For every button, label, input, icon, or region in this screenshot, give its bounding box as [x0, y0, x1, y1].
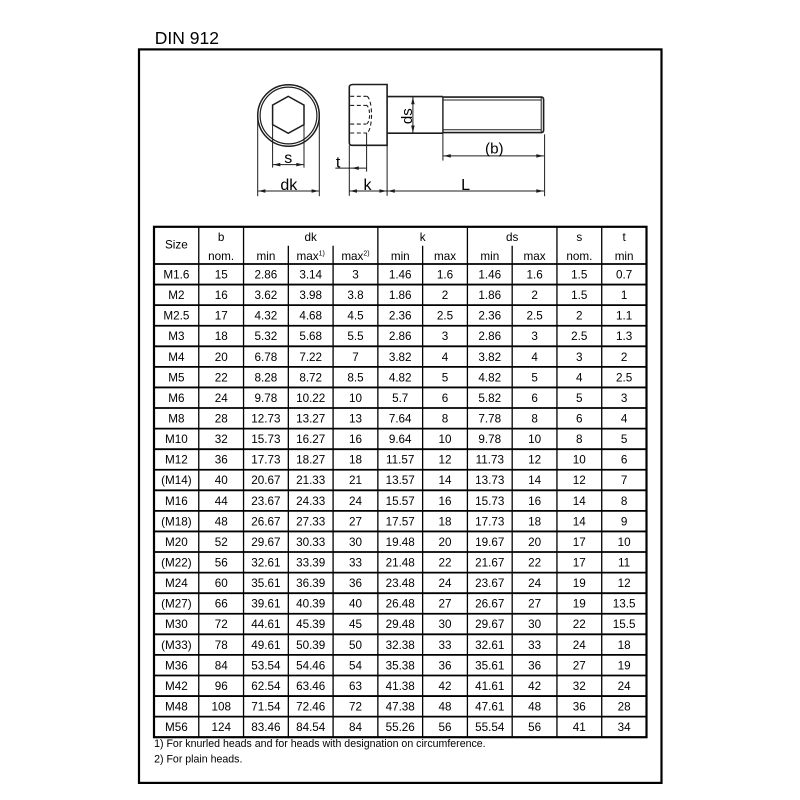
- svg-text:ds: ds: [399, 108, 416, 124]
- svg-text:M205229.6730.333019.482019.672: M205229.6730.333019.482019.67201710: [165, 536, 631, 549]
- svg-text:M2.5174.324.684.52.362.52.362.: M2.5174.324.684.52.362.52.362.521.1: [163, 310, 632, 323]
- svg-text:M307244.6145.394529.483029.673: M307244.6145.394529.483029.67302215.5: [165, 618, 636, 631]
- svg-text:M6249.7810.22105.765.82653: M6249.7810.22105.765.82653: [168, 392, 627, 405]
- svg-text:s: s: [284, 150, 292, 167]
- svg-text:(M33)7849.6150.395032.383332.6: (M33)7849.6150.395032.383332.61332418: [161, 639, 630, 652]
- svg-text:M246035.6136.393623.482423.672: M246035.6136.393623.482423.67241912: [165, 577, 631, 590]
- svg-text:M3185.325.685.52.8632.8632.51.: M3185.325.685.52.8632.8632.51.3: [168, 330, 632, 343]
- svg-text:L: L: [461, 177, 470, 194]
- svg-text:t: t: [336, 155, 341, 172]
- svg-text:max: max: [524, 250, 546, 263]
- svg-text:M1.6152.863.1431.461.61.461.61: M1.6152.863.1431.461.61.461.61.50.7: [163, 268, 632, 281]
- svg-text:M103215.7316.27169.64109.78108: M103215.7316.27169.64109.781085: [165, 433, 628, 446]
- svg-text:(b): (b): [485, 141, 504, 158]
- svg-text:min: min: [391, 250, 410, 263]
- svg-text:min: min: [615, 250, 634, 263]
- svg-text:max2): max2): [341, 250, 369, 263]
- svg-text:M368453.5454.465435.383635.613: M368453.5454.465435.383635.61362719: [165, 659, 631, 672]
- svg-text:2) For plain heads.: 2) For plain heads.: [154, 754, 242, 766]
- svg-text:M164423.6724.332415.571615.731: M164423.6724.332415.571615.7316148: [165, 495, 627, 508]
- svg-text:max1): max1): [297, 250, 325, 263]
- svg-text:max: max: [434, 250, 456, 263]
- svg-text:k: k: [364, 177, 373, 194]
- svg-text:nom.: nom.: [566, 250, 592, 263]
- svg-text:M429662.5463.466341.384241.614: M429662.5463.466341.384241.61423224: [165, 680, 631, 693]
- svg-text:DIN 912: DIN 912: [155, 28, 219, 48]
- svg-text:M123617.7318.271811.571211.731: M123617.7318.271811.571211.7312106: [165, 454, 627, 467]
- svg-text:ds: ds: [506, 231, 519, 244]
- svg-text:M2163.623.983.81.8621.8621.51: M2163.623.983.81.8621.8621.51: [168, 289, 627, 302]
- svg-text:min: min: [257, 250, 276, 263]
- svg-text:min: min: [480, 250, 499, 263]
- svg-text:s: s: [576, 231, 582, 244]
- svg-text:(M27)6639.6140.394026.482726.6: (M27)6639.6140.394026.482726.67271913.5: [161, 598, 636, 611]
- svg-text:M4810871.5472.467247.384847.61: M4810871.5472.467247.384847.61483628: [165, 701, 631, 714]
- svg-text:M5612483.4684.548455.265655.54: M5612483.4684.548455.265655.54564134: [165, 721, 631, 734]
- svg-text:t: t: [622, 231, 626, 244]
- svg-text:M4206.787.2273.8243.82432: M4206.787.2273.8243.82432: [168, 351, 627, 364]
- svg-text:nom.: nom.: [208, 250, 234, 263]
- svg-text:(M22)5632.6133.393321.482221.6: (M22)5632.6133.393321.482221.67221711: [161, 557, 630, 570]
- svg-text:Size: Size: [165, 239, 188, 252]
- svg-text:M82812.7313.27137.6487.78864: M82812.7313.27137.6487.78864: [168, 413, 628, 426]
- svg-text:k: k: [420, 231, 426, 244]
- svg-text:dk: dk: [305, 231, 318, 244]
- svg-text:dk: dk: [280, 177, 298, 194]
- svg-text:M5228.288.728.54.8254.82542.5: M5228.288.728.54.8254.82542.5: [168, 371, 632, 384]
- svg-text:b: b: [218, 231, 225, 244]
- svg-text:1) For knurled heads and for h: 1) For knurled heads and for heads with …: [154, 738, 486, 750]
